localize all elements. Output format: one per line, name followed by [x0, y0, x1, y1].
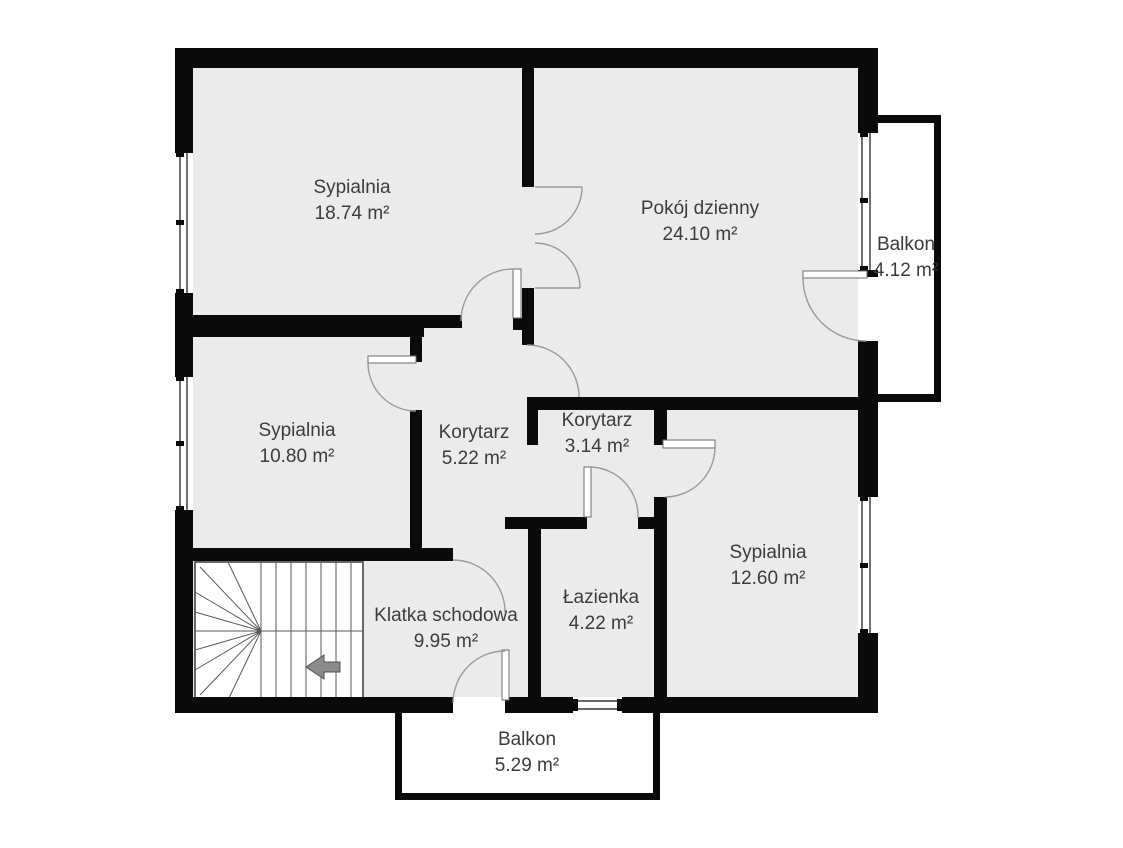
room-name: Korytarz [562, 408, 633, 434]
room-label-sypialnia-2: Sypialnia 10.80 m² [258, 418, 335, 470]
room-name: Sypialnia [729, 540, 806, 566]
wall-segment [175, 548, 453, 561]
room-area: 5.29 m² [495, 753, 559, 779]
wall-segment [654, 497, 667, 697]
room-name: Klatka schodowa [374, 603, 518, 629]
room-area: 18.74 m² [313, 201, 390, 227]
room-area: 10.80 m² [258, 444, 335, 470]
room-area: 5.22 m² [439, 446, 510, 472]
wall-segment [410, 410, 422, 551]
balcony-wall [395, 703, 402, 800]
room-area: 9.95 m² [374, 629, 518, 655]
floorplan-canvas: Sypialnia 18.74 m² Pokój dzienny 24.10 m… [0, 0, 1123, 848]
room-label-korytarz-1: Korytarz 5.22 m² [439, 420, 510, 472]
room-name: Sypialnia [313, 175, 390, 201]
staircase [195, 562, 363, 700]
wall-segment [175, 697, 878, 713]
room-label-lazienka: Łazienka 4.22 m² [563, 585, 639, 637]
room-area: 3.14 m² [562, 434, 633, 460]
balcony-wall [872, 394, 941, 402]
wall-segment [522, 68, 534, 187]
room-area: 4.12 m² [874, 258, 938, 284]
room-label-balkon-1: Balkon 4.12 m² [874, 232, 938, 284]
room-label-klatka-schodowa: Klatka schodowa 9.95 m² [374, 603, 518, 655]
room-name: Łazienka [563, 585, 639, 611]
wall-segment [513, 318, 534, 330]
room-area: 4.22 m² [563, 611, 639, 637]
room-name: Balkon [495, 727, 559, 753]
wall-segment [527, 410, 538, 445]
room-label-sypialnia-1: Sypialnia 18.74 m² [313, 175, 390, 227]
room-area: 24.10 m² [641, 222, 759, 248]
room-name: Pokój dzienny [641, 196, 759, 222]
balcony-wall [653, 703, 660, 800]
room-area: 12.60 m² [729, 566, 806, 592]
door-opening [453, 697, 505, 713]
wall-segment [175, 324, 424, 337]
wall-segment [505, 517, 587, 529]
wall-segment [522, 288, 534, 345]
room-label-balkon-2: Balkon 5.29 m² [495, 727, 559, 779]
room-label-korytarz-2: Korytarz 3.14 m² [562, 408, 633, 460]
room-label-pokoj-dzienny: Pokój dzienny 24.10 m² [641, 196, 759, 248]
door-opening [858, 277, 878, 341]
wall-segment [528, 529, 541, 697]
wall-segment [175, 48, 878, 68]
window-opening [573, 697, 622, 713]
room-name: Sypialnia [258, 418, 335, 444]
balcony-wall [395, 793, 660, 800]
room-label-sypialnia-3: Sypialnia 12.60 m² [729, 540, 806, 592]
room-name: Balkon [874, 232, 938, 258]
room-name: Korytarz [439, 420, 510, 446]
balcony-wall [878, 115, 941, 123]
